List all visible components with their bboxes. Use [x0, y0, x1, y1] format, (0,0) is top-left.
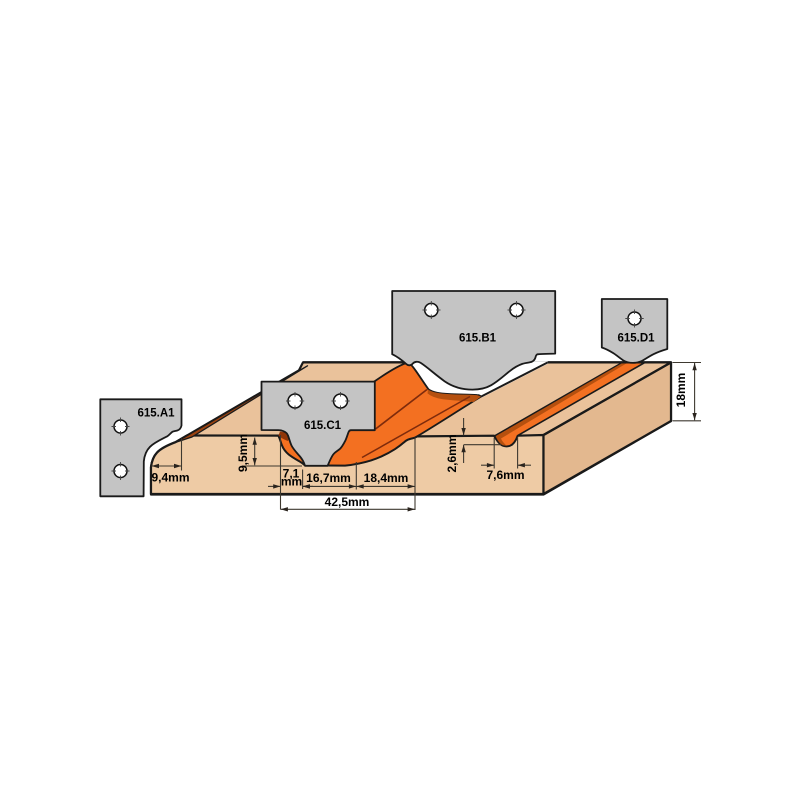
svg-text:42,5mm: 42,5mm: [325, 495, 370, 509]
svg-text:9,5mm: 9,5mm: [236, 434, 250, 472]
svg-text:615.A1: 615.A1: [137, 408, 175, 420]
svg-text:9,4mm: 9,4mm: [151, 471, 189, 485]
svg-text:615.B1: 615.B1: [459, 333, 497, 345]
svg-text:615.C1: 615.C1: [304, 420, 342, 432]
svg-text:18mm: 18mm: [674, 373, 688, 408]
svg-text:16,7mm: 16,7mm: [306, 471, 351, 485]
svg-text:615.D1: 615.D1: [617, 332, 655, 344]
svg-text:2,6mm: 2,6mm: [445, 434, 459, 472]
svg-text:mm: mm: [281, 474, 302, 488]
svg-text:7,6mm: 7,6mm: [486, 468, 524, 482]
svg-text:18,4mm: 18,4mm: [364, 471, 409, 485]
